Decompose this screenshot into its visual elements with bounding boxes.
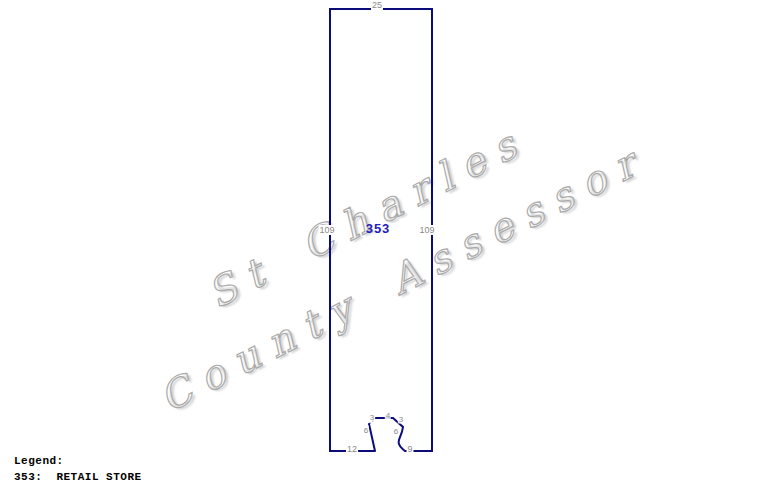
assessor-sketch-page: St Charles County Assessor 25 109 109 12…	[0, 0, 762, 503]
dim-label-left-side: 109	[318, 225, 335, 235]
dim-label-notch-left-diag: 6	[363, 426, 369, 435]
legend-entry-code: 353:	[14, 471, 42, 483]
legend-title: Legend:	[14, 455, 142, 467]
dim-label-bottom-left: 12	[346, 444, 358, 454]
dim-label-notch-top: 4	[385, 411, 391, 420]
parcel-sketch-drawing	[0, 0, 762, 503]
dim-label-top: 25	[371, 0, 383, 10]
legend-entry: 353:RETAIL STORE	[14, 471, 142, 483]
legend-entry-label: RETAIL STORE	[56, 471, 141, 483]
dim-label-notch-right-side: 6	[393, 427, 399, 436]
area-code-label: 353	[366, 221, 391, 236]
dim-label-notch-left-top: 3	[369, 413, 375, 422]
legend: Legend: 353:RETAIL STORE	[14, 455, 142, 483]
dim-label-notch-right-diag: 3	[398, 415, 404, 424]
dim-label-bottom-right: 9	[406, 444, 413, 454]
dim-label-right-side: 109	[418, 225, 435, 235]
